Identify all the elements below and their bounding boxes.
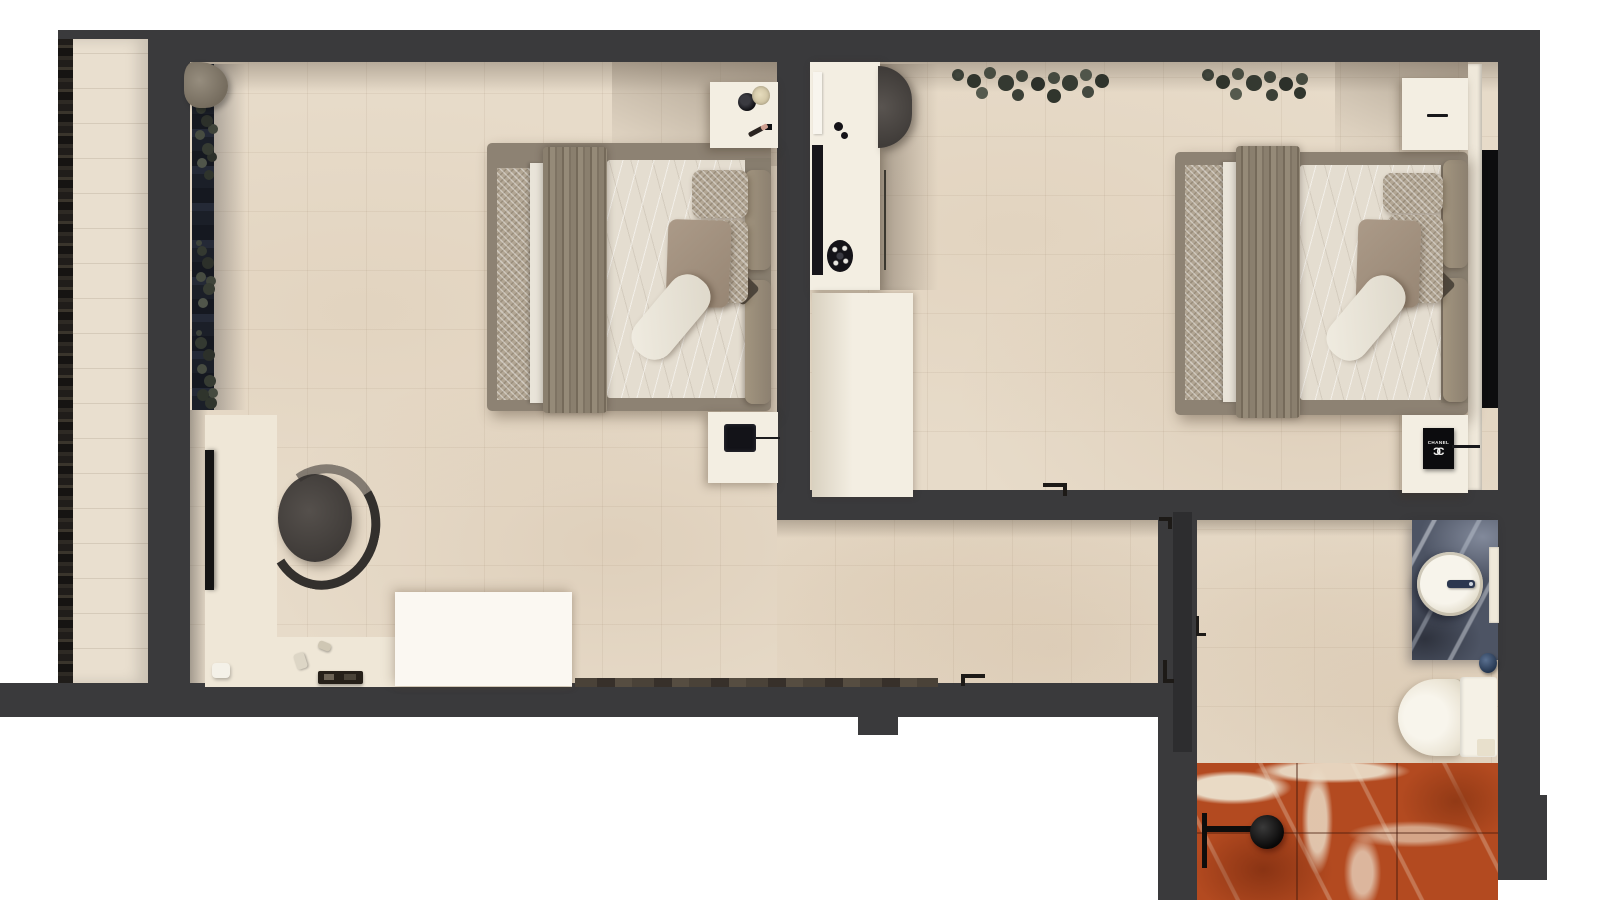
headboard-ledge (1468, 64, 1482, 490)
wall-bathroom-notch (1540, 795, 1547, 880)
bed-chevron-sheet (497, 168, 531, 400)
pillow-chevron (1383, 173, 1443, 213)
door-mark-hallway (961, 674, 965, 686)
wall-balcony-top (58, 30, 148, 39)
nightstand-right-bottom: CHANEL CC (1402, 415, 1468, 493)
plant-cluster (196, 330, 202, 336)
nightstand-left-bottom (708, 412, 778, 483)
flush-plate (1477, 739, 1495, 756)
pillow-chevron (692, 170, 748, 218)
balcony-planter-edge (58, 39, 73, 683)
wardrobe (812, 293, 913, 497)
bed-left (487, 143, 771, 411)
bed-blanket-runner (1236, 146, 1300, 418)
toiletry-bottle (1479, 653, 1497, 673)
wall-top (148, 30, 1540, 62)
door-handle (1196, 633, 1206, 636)
wall-divider (777, 62, 810, 498)
headboard-bolster (1443, 160, 1468, 268)
wall-step (858, 715, 898, 735)
shadow-sill (214, 64, 246, 410)
nightstand-right-top (1402, 78, 1468, 150)
plant-cluster (1205, 72, 1211, 78)
bed-right (1175, 152, 1468, 415)
shower-drain-head (1250, 815, 1284, 849)
faucet (1447, 580, 1475, 588)
door-jamb-bottom (1163, 679, 1174, 683)
floor-plan-render: CHANEL CC (0, 0, 1600, 900)
door-jamb-top (1168, 517, 1172, 529)
bed-blanket-runner (543, 147, 607, 413)
hallway-floor (777, 520, 1158, 683)
chanel-gift-box: CHANEL CC (1423, 428, 1454, 469)
chanel-cc-logo: CC (1433, 447, 1445, 457)
bathroom-sliding-door (1173, 512, 1192, 752)
floor-mirror (205, 450, 214, 590)
nightstand-left-top (710, 82, 778, 148)
tablet (724, 424, 756, 452)
headboard-bolster (1443, 278, 1468, 402)
wall-right (1498, 30, 1540, 880)
headboard-bolster (745, 170, 771, 270)
desk-edge (884, 170, 886, 270)
handle-rod (1452, 445, 1480, 448)
makeup-brush (748, 126, 764, 138)
plant-cluster (196, 240, 202, 246)
bed-sheet-fold (1223, 162, 1236, 402)
white-console (395, 592, 572, 686)
chanel-label: CHANEL (1428, 440, 1450, 445)
decor-tray (318, 671, 363, 684)
slipper (212, 663, 230, 678)
marble-threshold (575, 678, 938, 687)
stylus (756, 437, 780, 439)
desk-decor (834, 122, 843, 131)
bed-chevron-sheet (1185, 165, 1223, 400)
door-mark-bedroom-right (1063, 483, 1067, 496)
bed-sheet-fold (530, 163, 543, 403)
shower-pipe (1202, 813, 1207, 868)
wall-bottom (0, 683, 1158, 717)
desk-runner (812, 145, 823, 275)
candle (752, 86, 770, 105)
headboard-panel (1482, 150, 1498, 408)
plant-cluster (955, 72, 961, 78)
shadow-band (777, 520, 1158, 538)
window-sill (192, 64, 214, 410)
wall-left (148, 30, 190, 717)
paper-sheet (813, 72, 822, 134)
towel-rail (1489, 547, 1499, 623)
pen (1427, 114, 1448, 117)
jewelry-tray (827, 240, 853, 272)
vanity-desk (810, 62, 880, 290)
